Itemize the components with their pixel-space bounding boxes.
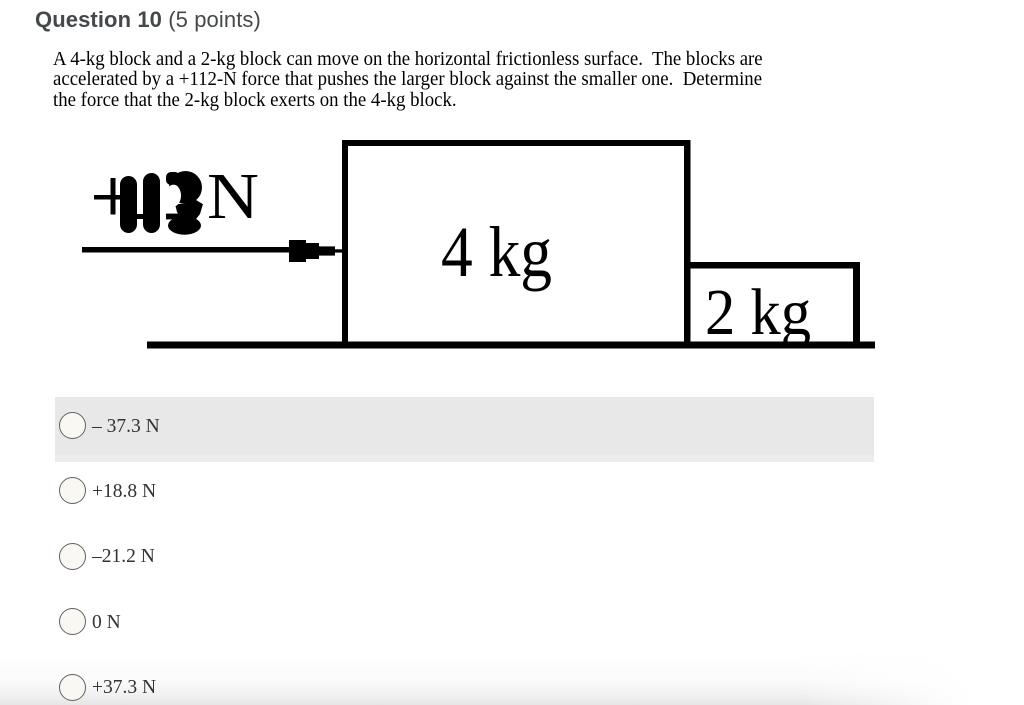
svg-text:N: N bbox=[207, 160, 259, 233]
svg-text:2 kg: 2 kg bbox=[705, 276, 811, 349]
svg-text:4 kg: 4 kg bbox=[441, 212, 552, 292]
